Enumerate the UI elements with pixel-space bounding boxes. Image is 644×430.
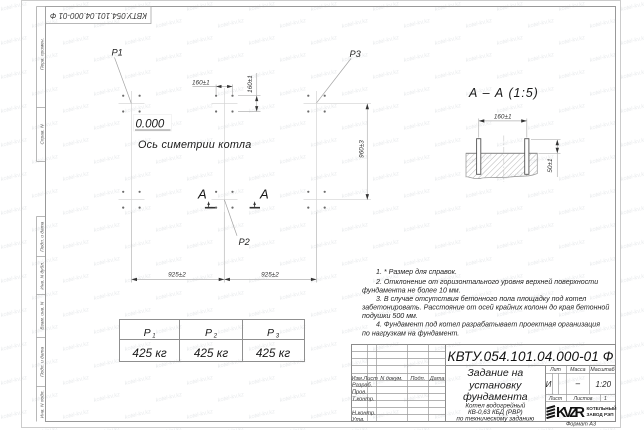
svg-text:Р: Р [205,327,212,339]
svg-text:Н.контр.: Н.контр. [352,410,376,416]
svg-text:KVZR: KVZR [556,405,586,421]
svg-text:установку: установку [468,380,522,392]
svg-text:Листов: Листов [573,396,593,402]
svg-text:50±1: 50±1 [547,158,554,173]
svg-text:ЗАВОД РЭП: ЗАВОД РЭП [587,412,614,417]
svg-text:2. Отклонение от горизонтальн: 2. Отклонение от горизонтального уровня … [375,278,598,286]
svg-text:1:20: 1:20 [596,380,612,389]
svg-text:Справ. N: Справ. N [40,124,46,145]
svg-text:4. Фундамент под котел разраб: 4. Фундамент под котел разрабатывает про… [376,321,600,329]
svg-text:925±2: 925±2 [261,272,279,279]
svg-text:КВТУ.054.101.04.000-01 Ф: КВТУ.054.101.04.000-01 Ф [49,11,147,20]
svg-text:Ось симетрии котла: Ось симетрии котла [138,139,252,151]
svg-text:А – А (1:5): А – А (1:5) [468,86,539,100]
svg-text:3. В случае отсутствия бетонн: 3. В случае отсутствия бетонного пола пл… [376,295,586,303]
svg-text:по нагрузкам на фундамент.: по нагрузкам на фундамент. [362,330,459,338]
svg-text:Инв. N дубл.: Инв. N дубл. [40,262,46,290]
svg-text:Р: Р [267,327,274,339]
svg-text:Подп. и дата: Подп. и дата [40,347,46,377]
svg-text:425 кг: 425 кг [256,346,291,360]
svg-text:Масштаб: Масштаб [590,367,615,373]
svg-text:Инв. N подл.: Инв. N подл. [40,390,46,418]
svg-text:Пров.: Пров. [352,390,367,396]
svg-text:А: А [197,187,207,202]
svg-text:160±1: 160±1 [192,79,210,86]
svg-text:Формат А3: Формат А3 [566,422,597,428]
svg-text:–: – [575,379,581,388]
svg-text:Масса: Масса [570,367,585,373]
svg-text:И: И [546,380,552,389]
svg-text:Разраб.: Разраб. [352,383,372,389]
svg-text:по техническому заданию: по техническому заданию [456,414,534,422]
svg-text:1. * Размер для справок.: 1. * Размер для справок. [376,268,457,276]
svg-text:1: 1 [604,396,607,402]
svg-text:0.000: 0.000 [136,119,165,131]
svg-text:А: А [259,187,269,202]
svg-text:Лит: Лит [549,367,561,373]
svg-text:160±1: 160±1 [247,75,254,93]
svg-text:2: 2 [213,333,218,339]
svg-text:Лист: Лист [548,396,563,402]
svg-text:забетонировать. Расстояние от: забетонировать. Расстояние от осей крайн… [361,304,609,312]
svg-text:Дата: Дата [429,376,445,382]
svg-text:425 кг: 425 кг [194,346,229,360]
svg-text:Р: Р [144,327,151,339]
svg-text:Взам. инв. N: Взам. инв. N [40,301,46,329]
svg-text:КВТУ.054.101.04.000-01 Ф: КВТУ.054.101.04.000-01 Ф [448,349,614,364]
svg-text:925±2: 925±2 [168,272,186,279]
svg-text:Задание на: Задание на [467,367,523,379]
svg-text:Перв. примен.: Перв. примен. [40,38,46,70]
svg-text:Подп.: Подп. [410,376,425,382]
svg-text:Т.контр.: Т.контр. [352,396,375,402]
svg-text:N докум.: N докум. [380,376,403,382]
svg-text:Изм.Лист: Изм.Лист [352,376,379,382]
svg-text:Р2: Р2 [239,237,250,247]
svg-text:подушки 500 мм.: подушки 500 мм. [362,312,418,320]
svg-text:фундамента: фундамента [463,391,528,403]
svg-text:160±1: 160±1 [494,113,512,120]
svg-text:960±3: 960±3 [359,140,366,158]
svg-text:Р3: Р3 [350,49,362,59]
svg-text:Р1: Р1 [112,48,123,58]
svg-text:Утв.: Утв. [351,417,365,423]
svg-text:КОТЕЛЬНЫЙ: КОТЕЛЬНЫЙ [587,404,617,411]
svg-text:Подп. и дата: Подп. и дата [40,221,46,251]
svg-text:1: 1 [152,333,155,339]
svg-text:425 кг: 425 кг [132,346,167,360]
svg-text:фундамента не более 10 мм.: фундамента не более 10 мм. [362,286,461,294]
